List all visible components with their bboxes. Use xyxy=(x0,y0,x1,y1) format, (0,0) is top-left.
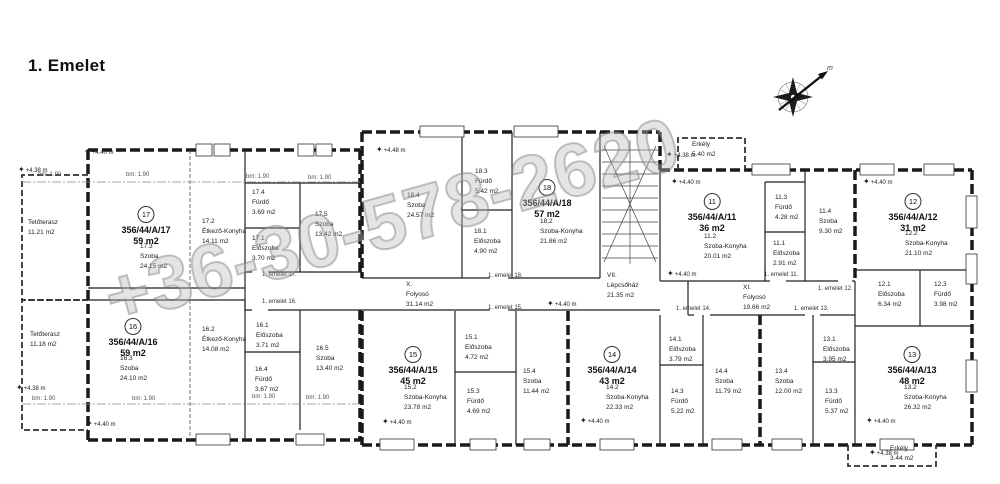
room-area: 3.95 m2 xyxy=(823,355,850,365)
apartment-label-18: 18 356/44/A/18 57 m2 xyxy=(522,177,571,219)
elevation-star-icon: ✦ xyxy=(866,416,873,425)
stairwell-id: VII. xyxy=(607,271,638,281)
room-label-17-4: 17.4Fürdő3.69 m2 xyxy=(252,188,276,217)
room-type: Étkező-Konyha xyxy=(202,227,246,237)
room-id: 17.1 xyxy=(252,234,279,244)
room-area: 24.15 m2 xyxy=(140,262,167,272)
elevation-star-icon: ✦ xyxy=(16,383,23,392)
elevation-value: +4.40 m xyxy=(675,272,697,278)
room-label-13-4: 13.4Szoba12.00 m2 xyxy=(775,367,802,396)
bm-label: bm: 1.90 xyxy=(252,394,275,400)
elevation-star-icon: ✦ xyxy=(376,145,383,154)
room-type: Szoba xyxy=(120,364,147,374)
room-type: Szoba-Konyha xyxy=(540,227,583,237)
apartment-number-badge: 11 xyxy=(703,193,720,210)
room-type: Előszoba xyxy=(252,244,279,254)
room-area: 11.44 m2 xyxy=(523,387,550,397)
room-type: Fürdő xyxy=(825,397,849,407)
room-id: 11.1 xyxy=(773,239,800,249)
terrace-top-label: Tetőterasz11.21 m2 xyxy=(28,218,58,238)
bm-label: bm: 1.90 xyxy=(132,396,155,402)
apartment-number-badge: 12 xyxy=(904,193,921,210)
room-area: 26.32 m2 xyxy=(904,403,947,413)
elevation-value: +4.40 m xyxy=(871,180,893,186)
room-id: 18.2 xyxy=(540,217,583,227)
room-area: 14.08 m2 xyxy=(202,345,246,355)
elevation-star-icon: ✦ xyxy=(18,165,25,174)
room-area: 13.40 m2 xyxy=(316,364,343,374)
elevation-marker: ✦+4.40 m xyxy=(863,178,893,186)
room-type: Előszoba xyxy=(465,343,492,353)
stairs-symbol xyxy=(602,140,658,264)
room-type: Szoba-Konyha xyxy=(606,393,649,403)
room-label-16-1: 16.1Előszoba3.71 m2 xyxy=(256,321,283,350)
corridor-xi-label: XI.Folyosó19.66 m2 xyxy=(743,283,770,312)
room-id: 17.3 xyxy=(140,242,167,252)
room-type: Szoba xyxy=(140,252,167,262)
room-label-11-1: 11.1Előszoba2.91 m2 xyxy=(773,239,800,268)
room-id: 15.2 xyxy=(404,383,447,393)
bm-label: bm: 1.90 xyxy=(308,175,331,181)
elevation-marker: ✦+4.40 m xyxy=(866,417,896,425)
room-area: 24.10 m2 xyxy=(120,374,147,384)
room-type: Szoba xyxy=(315,220,342,230)
room-area: 3.98 m2 xyxy=(934,300,958,310)
room-label-14-1: 14.1Előszoba3.79 m2 xyxy=(669,335,696,364)
elevation-marker: ✦+4.48 m xyxy=(376,146,406,154)
elevation-value: +4.40 m xyxy=(92,150,114,156)
terrace-name: Tetőterasz xyxy=(28,218,58,228)
room-type: Fürdő xyxy=(252,198,276,208)
room-label-16-3: 16.3Szoba24.10 m2 xyxy=(120,354,147,383)
bm-label: bm: 1.90 xyxy=(32,396,55,402)
room-type: Szoba-Konyha xyxy=(904,393,947,403)
room-type: Előszoba xyxy=(773,249,800,259)
door-label-18: 1. emelet 18. xyxy=(488,273,523,279)
room-area: 21.10 m2 xyxy=(905,249,948,259)
room-area: 5.37 m2 xyxy=(825,407,849,417)
elevation-marker: ✦+4.38 m xyxy=(16,384,46,392)
room-type: Előszoba xyxy=(878,290,905,300)
room-area: 3.69 m2 xyxy=(252,208,276,218)
room-label-11-3: 11.3Fürdő4.28 m2 xyxy=(775,193,799,222)
apartment-code: 356/44/A/16 xyxy=(108,337,157,347)
elevation-star-icon: ✦ xyxy=(667,269,674,278)
elevation-value: +4.40 m xyxy=(555,302,577,308)
elevation-marker: ✦+4.40 m xyxy=(84,148,114,156)
room-id: 16.4 xyxy=(255,365,279,375)
elevation-star-icon: ✦ xyxy=(869,448,876,457)
elevation-value: +4.40 m xyxy=(588,419,610,425)
room-label-16-4: 16.4Fürdő3.67 m2 xyxy=(255,365,279,394)
apartment-number-badge: 13 xyxy=(903,346,920,363)
room-type: Szoba xyxy=(407,201,434,211)
room-id: 15.3 xyxy=(467,387,491,397)
room-area: 3.71 m2 xyxy=(256,341,283,351)
room-area: 20.01 m2 xyxy=(704,252,747,262)
apartment-code: 356/44/A/18 xyxy=(522,198,571,208)
apartment-label-11: 11 356/44/A/11 36 m2 xyxy=(688,191,737,233)
bm-label: bm: 1.90 xyxy=(38,172,61,178)
room-label-12-3: 12.3Fürdő3.98 m2 xyxy=(934,280,958,309)
room-id: 13.1 xyxy=(823,335,850,345)
room-type: Előszoba xyxy=(256,331,283,341)
room-area: 6.34 m2 xyxy=(878,300,905,310)
elevation-marker: ✦+4.40 m xyxy=(86,420,116,428)
apartment-label-16: 16 356/44/A/16 59 m2 xyxy=(108,316,157,358)
apartment-code: 356/44/A/13 xyxy=(887,365,936,375)
room-type: Étkező-Konyha xyxy=(202,335,246,345)
elevation-star-icon: ✦ xyxy=(666,150,673,159)
stairwell-label: VII.Lépcsőház21.35 m2 xyxy=(607,271,638,300)
room-label-15-2: 15.2Szoba-Konyha23.78 m2 xyxy=(404,383,447,412)
corridor-name: Folyosó xyxy=(406,290,433,300)
room-label-18-4: 18.4Szoba24.57 m2 xyxy=(407,191,434,220)
room-id: 13.2 xyxy=(904,383,947,393)
room-id: 15.1 xyxy=(465,333,492,343)
room-label-15-4: 15.4Szoba11.44 m2 xyxy=(523,367,550,396)
room-id: 14.4 xyxy=(715,367,742,377)
room-label-12-2: 12.2Szoba-Konyha21.10 m2 xyxy=(905,229,948,258)
elevation-star-icon: ✦ xyxy=(84,147,91,156)
apartment-number-badge: 16 xyxy=(124,318,141,335)
room-type: Fürdő xyxy=(255,375,279,385)
elevation-marker: ✦+4.40 m xyxy=(382,418,412,426)
room-label-18-1: 18.1Előszoba4.90 m2 xyxy=(474,227,501,256)
door-label-14: 1. emelet 14. xyxy=(676,306,711,312)
corridor-id: X. xyxy=(406,280,433,290)
room-area: 3.67 m2 xyxy=(255,385,279,395)
terrace-area: 11.21 m2 xyxy=(28,228,58,238)
elevation-value: +4.40 m xyxy=(874,419,896,425)
room-label-14-3: 14.3Fürdő5.22 m2 xyxy=(671,387,695,416)
apartment-code: 356/44/A/15 xyxy=(388,365,437,375)
room-id: 11.3 xyxy=(775,193,799,203)
stairwell-area: 21.35 m2 xyxy=(607,291,638,301)
room-label-13-2: 13.2Szoba-Konyha26.32 m2 xyxy=(904,383,947,412)
room-id: 18.1 xyxy=(474,227,501,237)
door-label-15: 1. emelet 15. xyxy=(488,305,523,311)
apartment-code: 356/44/A/12 xyxy=(888,212,937,222)
terrace-name: Tetőterasz xyxy=(30,330,60,340)
room-area: 9.30 m2 xyxy=(819,227,843,237)
room-area: 23.78 m2 xyxy=(404,403,447,413)
room-id: 11.4 xyxy=(819,207,843,217)
room-label-12-1: 12.1Előszoba6.34 m2 xyxy=(878,280,905,309)
door-label-13: 1. emelet 13. xyxy=(794,306,829,312)
compass-rose-icon: m xyxy=(773,65,833,117)
room-id: 16.5 xyxy=(316,344,343,354)
elevation-star-icon: ✦ xyxy=(580,416,587,425)
room-area: 3.79 m2 xyxy=(669,355,696,365)
elevation-marker: ✦+4.40 m xyxy=(667,270,697,278)
room-id: 14.1 xyxy=(669,335,696,345)
room-type: Szoba xyxy=(523,377,550,387)
elevation-star-icon: ✦ xyxy=(547,299,554,308)
elevation-star-icon: ✦ xyxy=(671,177,678,186)
room-type: Szoba xyxy=(819,217,843,227)
elevation-value: +4.40 m xyxy=(679,180,701,186)
elevation-marker: ✦+4.40 m xyxy=(580,417,610,425)
elevation-marker: ✦+4.40 m xyxy=(547,300,577,308)
room-label-16-5: 16.5Szoba13.40 m2 xyxy=(316,344,343,373)
page-title: 1. Emelet xyxy=(28,56,105,76)
apartment-label-15: 15 356/44/A/15 45 m2 xyxy=(388,344,437,386)
elevation-value: +4.40 m xyxy=(390,420,412,426)
room-type: Fürdő xyxy=(475,177,499,187)
elevation-star-icon: ✦ xyxy=(863,177,870,186)
room-type: Szoba-Konyha xyxy=(404,393,447,403)
bm-label: bm: 1.90 xyxy=(246,174,269,180)
elevation-value: +4.40 m xyxy=(94,422,116,428)
door-label-11: 1. emelet 11. xyxy=(764,272,798,278)
room-id: 18.3 xyxy=(475,167,499,177)
room-area: 11.79 m2 xyxy=(715,387,742,397)
room-type: Szoba-Konyha xyxy=(905,239,948,249)
apartment-code: 356/44/A/11 xyxy=(688,212,737,222)
room-id: 17.2 xyxy=(202,217,246,227)
room-type: Fürdő xyxy=(467,397,491,407)
corridor-id: XI. xyxy=(743,283,770,293)
room-area: 14.11 m2 xyxy=(202,237,246,247)
room-area: 12.00 m2 xyxy=(775,387,802,397)
room-id: 16.2 xyxy=(202,325,246,335)
elevation-value: +4.38 m xyxy=(674,153,696,159)
apartment-label-17: 17 356/44/A/17 59 m2 xyxy=(121,204,170,246)
balcony-name: Erkély xyxy=(692,140,716,150)
elevation-star-icon: ✦ xyxy=(382,417,389,426)
floor-plan-page: m 1. Emelet 17 356/44/A/17 59 m2 16 356/… xyxy=(0,0,1000,484)
room-id: 17.4 xyxy=(252,188,276,198)
room-label-11-2: 11.2Szoba-Konyha20.01 m2 xyxy=(704,232,747,261)
room-area: 4.69 m2 xyxy=(467,407,491,417)
room-type: Szoba xyxy=(775,377,802,387)
room-area: 4.28 m2 xyxy=(775,213,799,223)
room-id: 17.5 xyxy=(315,210,342,220)
room-label-17-2: 17.2Étkező-Konyha14.11 m2 xyxy=(202,217,246,246)
room-id: 12.3 xyxy=(934,280,958,290)
room-area: 24.57 m2 xyxy=(407,211,434,221)
room-type: Szoba xyxy=(715,377,742,387)
elevation-star-icon: ✦ xyxy=(86,419,93,428)
room-area: 4.90 m2 xyxy=(474,247,501,257)
apartment-label-12: 12 356/44/A/12 31 m2 xyxy=(888,191,937,233)
room-label-17-5: 17.5Szoba13.42 m2 xyxy=(315,210,342,239)
apartment-label-13: 13 356/44/A/13 48 m2 xyxy=(887,344,936,386)
stairwell-name: Lépcsőház xyxy=(607,281,638,291)
room-area: 5.42 m2 xyxy=(475,187,499,197)
room-area: 2.91 m2 xyxy=(773,259,800,269)
apartment-number-badge: 15 xyxy=(404,346,421,363)
room-type: Előszoba xyxy=(474,237,501,247)
bm-label: bm: 1.90 xyxy=(126,172,149,178)
room-type: Fürdő xyxy=(671,397,695,407)
room-label-18-2: 18.2Szoba-Konyha21.86 m2 xyxy=(540,217,583,246)
bm-label: bm: 1.90 xyxy=(306,395,329,401)
corridor-name: Folyosó xyxy=(743,293,770,303)
room-label-11-4: 11.4Szoba9.30 m2 xyxy=(819,207,843,236)
room-area: 21.86 m2 xyxy=(540,237,583,247)
room-label-17-1: 17.1Előszoba3.70 m2 xyxy=(252,234,279,263)
room-area: 4.72 m2 xyxy=(465,353,492,363)
room-type: Szoba xyxy=(316,354,343,364)
room-id: 15.4 xyxy=(523,367,550,377)
room-area: 3.70 m2 xyxy=(252,254,279,264)
room-area: 5.22 m2 xyxy=(671,407,695,417)
room-id: 13.3 xyxy=(825,387,849,397)
door-label-17: 1. emelet 17. xyxy=(262,272,297,278)
room-id: 16.1 xyxy=(256,321,283,331)
room-id: 16.3 xyxy=(120,354,147,364)
room-label-16-2: 16.2Étkező-Konyha14.08 m2 xyxy=(202,325,246,354)
apartment-label-14: 14 356/44/A/14 43 m2 xyxy=(587,344,636,386)
room-label-13-3: 13.3Fürdő5.37 m2 xyxy=(825,387,849,416)
room-id: 18.4 xyxy=(407,191,434,201)
compass-north-label: m xyxy=(827,65,833,72)
room-label-14-4: 14.4Szoba11.79 m2 xyxy=(715,367,742,396)
room-id: 11.2 xyxy=(704,232,747,242)
room-label-13-1: 13.1Előszoba3.95 m2 xyxy=(823,335,850,364)
apartment-code: 356/44/A/17 xyxy=(121,225,170,235)
elevation-value: +4.38 m xyxy=(24,386,46,392)
room-label-15-1: 15.1Előszoba4.72 m2 xyxy=(465,333,492,362)
room-label-15-3: 15.3Fürdő4.69 m2 xyxy=(467,387,491,416)
corridor-area: 19.66 m2 xyxy=(743,303,770,313)
room-type: Szoba-Konyha xyxy=(704,242,747,252)
corridor-area: 31.14 m2 xyxy=(406,300,433,310)
elevation-marker: ✦+4.40 m xyxy=(671,178,701,186)
room-id: 13.4 xyxy=(775,367,802,377)
room-area: 22.33 m2 xyxy=(606,403,649,413)
room-id: 14.2 xyxy=(606,383,649,393)
door-label-12: 1. emelet 12. xyxy=(818,286,853,292)
elevation-marker: ✦+4.38 m xyxy=(666,151,696,159)
apartment-number-badge: 14 xyxy=(603,346,620,363)
door-label-16: 1. emelet 16. xyxy=(262,299,297,305)
apartment-number-badge: 17 xyxy=(137,206,154,223)
room-id: 12.2 xyxy=(905,229,948,239)
apartment-number-badge: 18 xyxy=(538,179,555,196)
apartment-code: 356/44/A/14 xyxy=(587,365,636,375)
room-type: Előszoba xyxy=(669,345,696,355)
room-type: Fürdő xyxy=(775,203,799,213)
room-label-17-3: 17.3Szoba24.15 m2 xyxy=(140,242,167,271)
elevation-value: +4.48 m xyxy=(384,148,406,154)
room-label-18-3: 18.3Fürdő5.42 m2 xyxy=(475,167,499,196)
bm-height-lines xyxy=(22,182,360,404)
elevation-marker: ✦+4.38 m xyxy=(869,449,899,457)
terrace-area: 11.18 m2 xyxy=(30,340,60,350)
elevation-value: +4.38 m xyxy=(877,451,899,457)
room-id: 12.1 xyxy=(878,280,905,290)
room-id: 14.3 xyxy=(671,387,695,397)
room-type: Fürdő xyxy=(934,290,958,300)
terrace-bottom-label: Tetőterasz11.18 m2 xyxy=(30,330,60,350)
room-label-14-2: 14.2Szoba-Konyha22.33 m2 xyxy=(606,383,649,412)
corridor-x-label: X.Folyosó31.14 m2 xyxy=(406,280,433,309)
room-type: Előszoba xyxy=(823,345,850,355)
room-area: 13.42 m2 xyxy=(315,230,342,240)
